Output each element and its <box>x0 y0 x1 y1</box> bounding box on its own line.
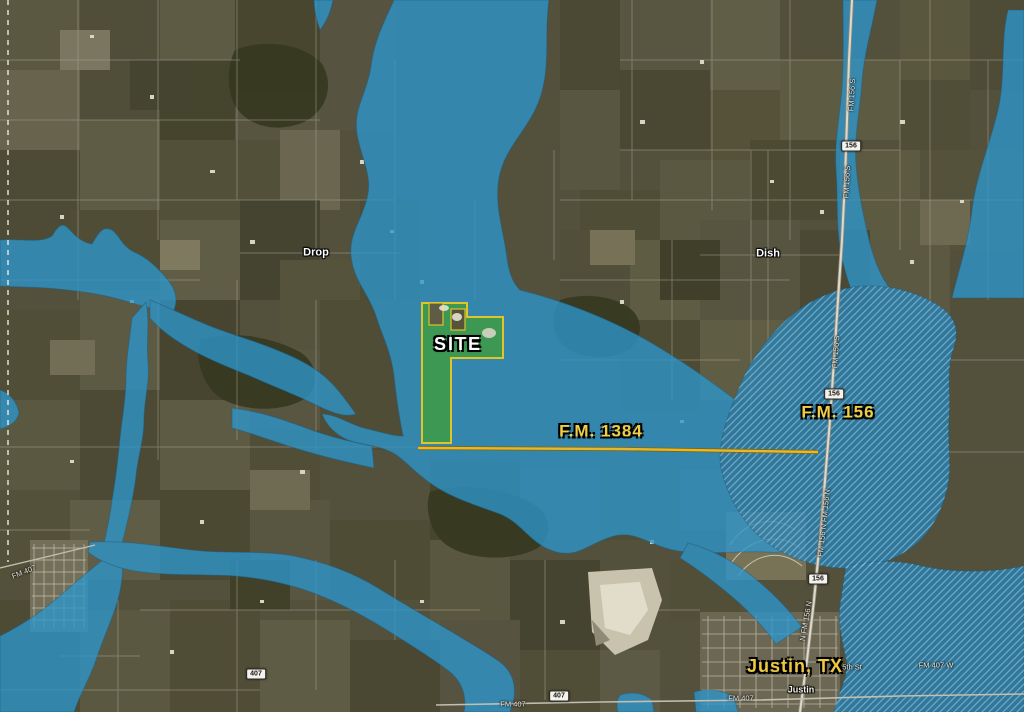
map-canvas <box>0 0 1024 712</box>
flood-map: SITE F.M. 1384 F.M. 156 Justin, TX DropD… <box>0 0 1024 712</box>
